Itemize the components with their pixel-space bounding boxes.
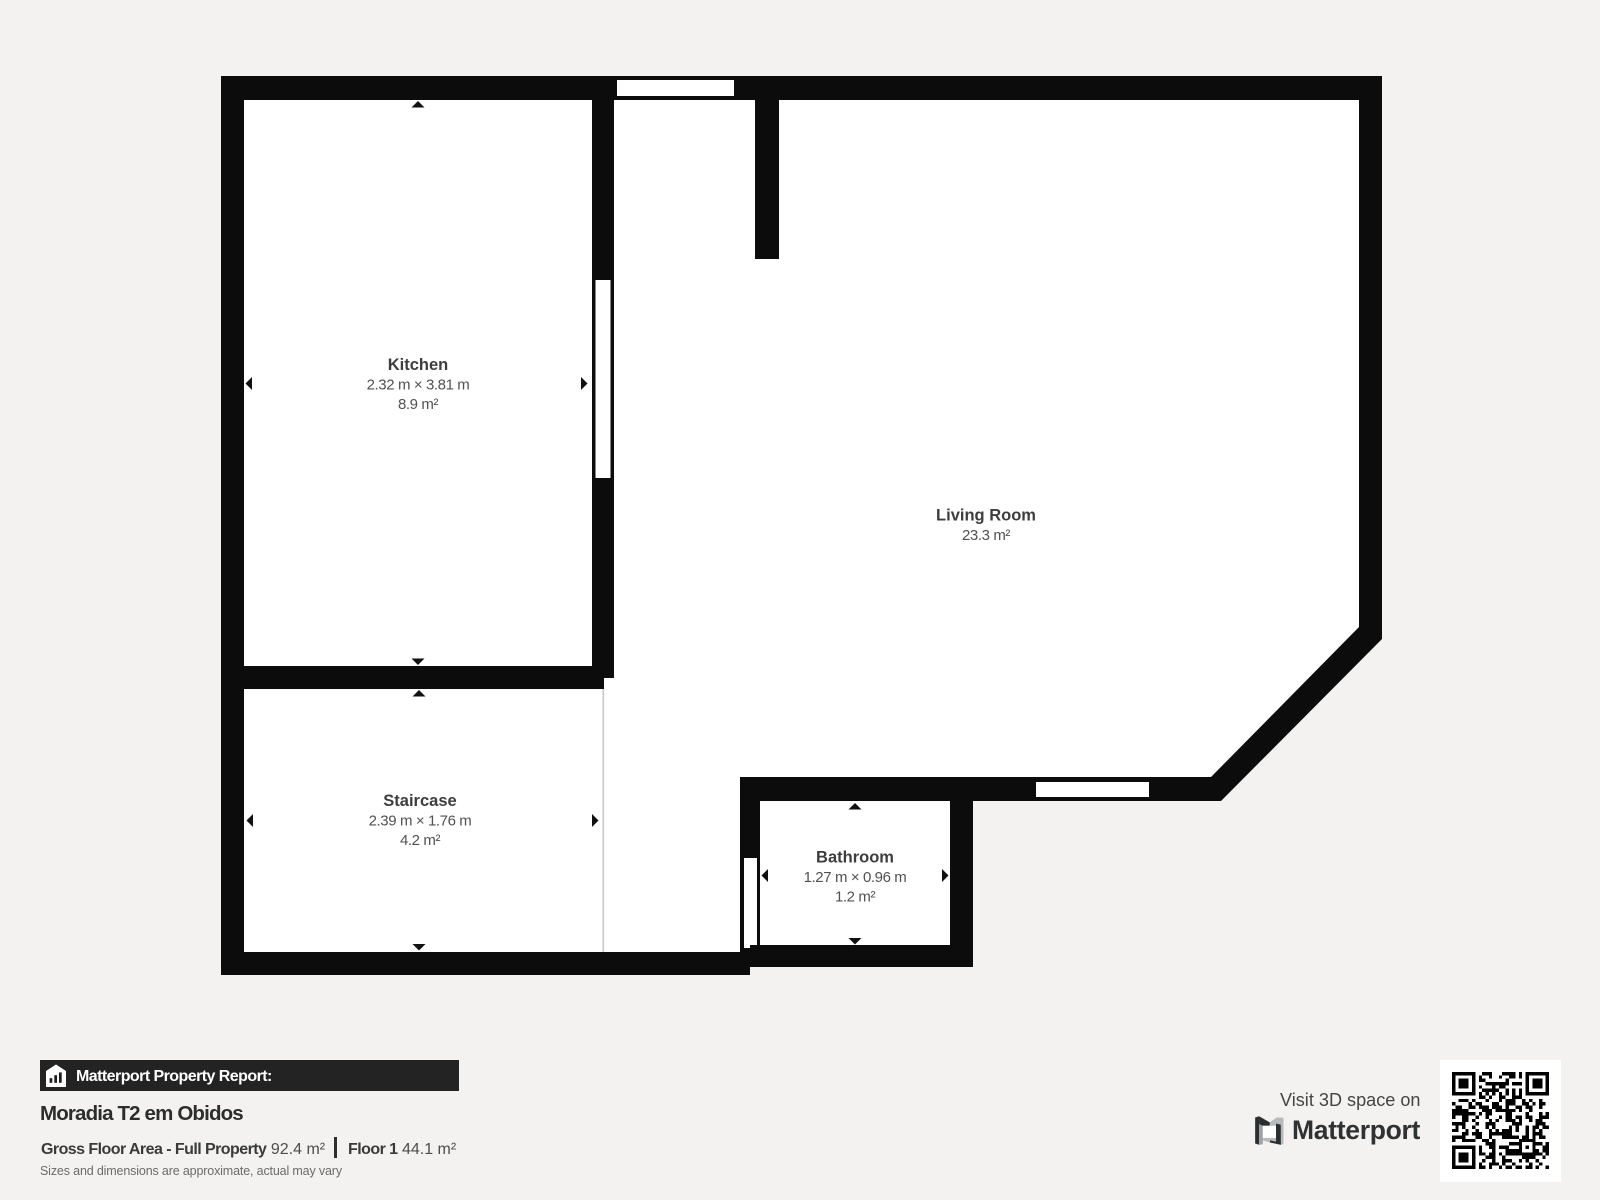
svg-text:2.32 m × 3.81 m: 2.32 m × 3.81 m bbox=[367, 377, 470, 394]
svg-text:8.9 m²: 8.9 m² bbox=[398, 396, 439, 413]
svg-text:2.39 m × 1.76 m: 2.39 m × 1.76 m bbox=[369, 813, 472, 830]
svg-text:4.2 m²: 4.2 m² bbox=[400, 832, 441, 849]
svg-text:Kitchen: Kitchen bbox=[388, 356, 449, 374]
svg-text:Living Room: Living Room bbox=[936, 507, 1036, 525]
svg-text:23.3 m²: 23.3 m² bbox=[962, 527, 1010, 544]
svg-text:Bathroom: Bathroom bbox=[816, 849, 894, 867]
svg-text:1.2 m²: 1.2 m² bbox=[835, 889, 876, 906]
svg-text:1.27 m × 0.96 m: 1.27 m × 0.96 m bbox=[804, 869, 907, 886]
svg-text:Staircase: Staircase bbox=[383, 792, 456, 810]
